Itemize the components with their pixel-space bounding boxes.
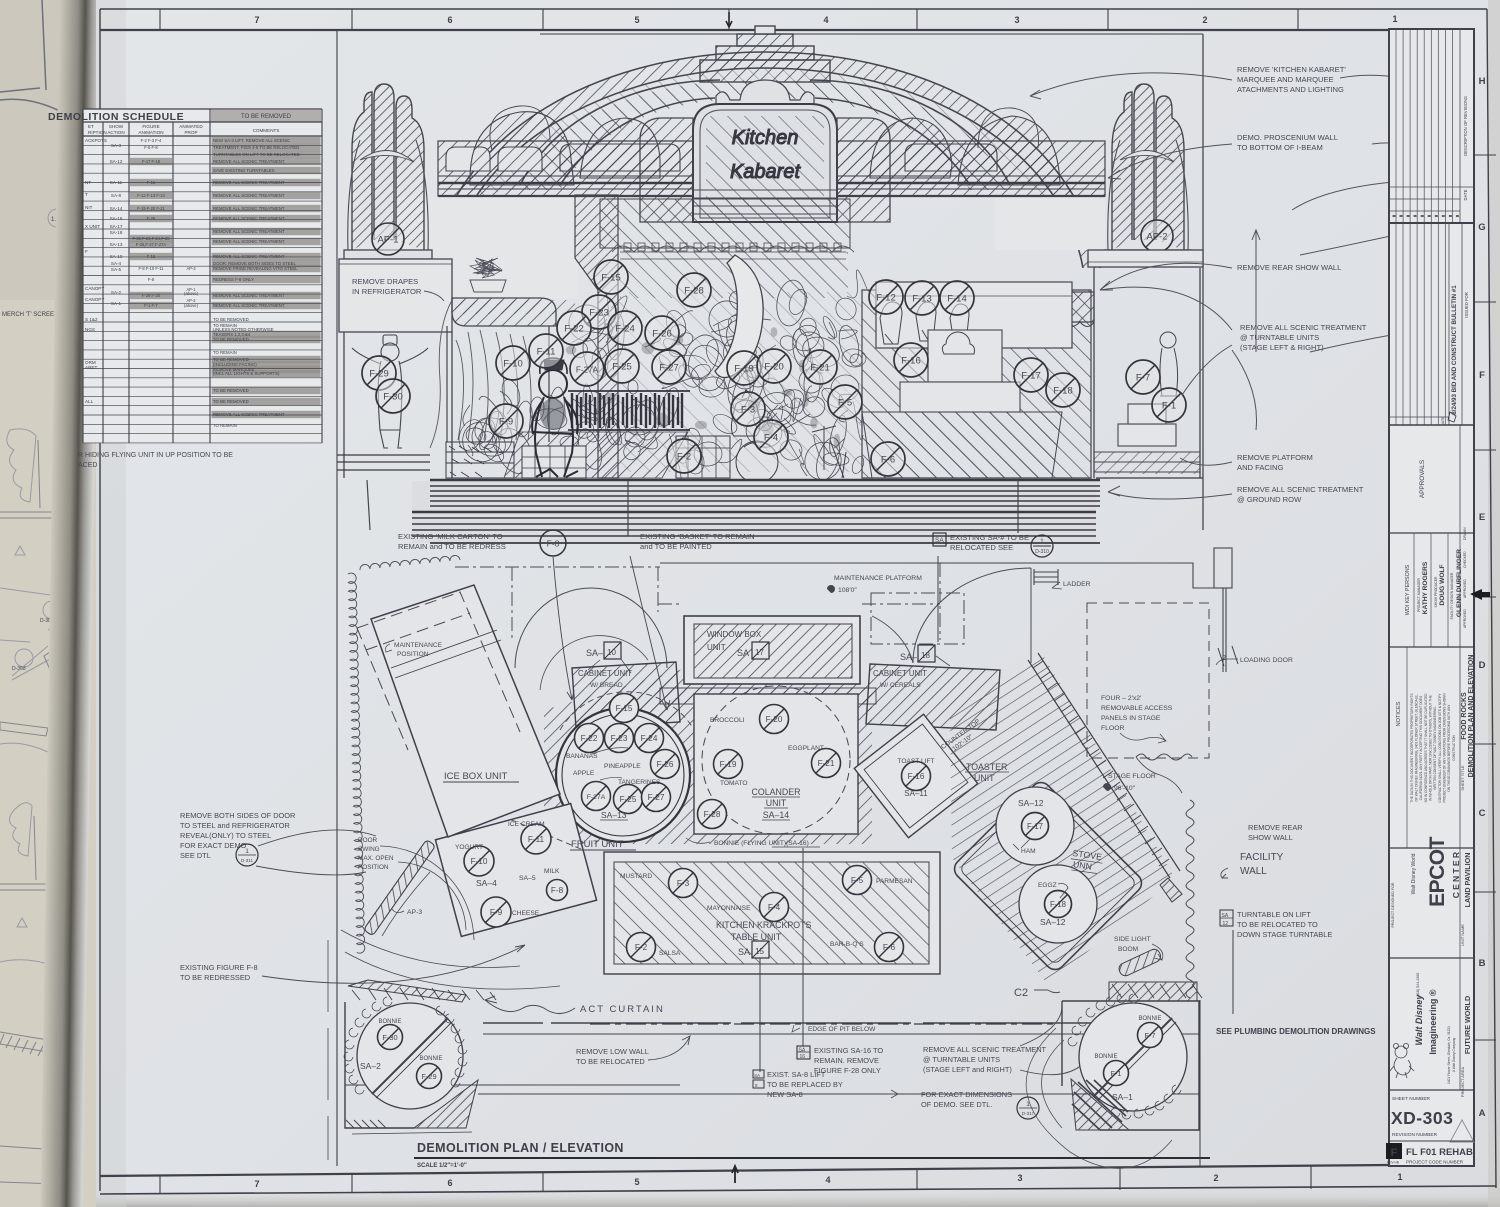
svg-text:REMOVE LOW WALL: REMOVE LOW WALL bbox=[576, 1047, 649, 1056]
svg-text:RELOCATED SEE: RELOCATED SEE bbox=[950, 543, 1013, 552]
svg-text:BOOM: BOOM bbox=[1118, 946, 1138, 953]
svg-text:SCALE 1/2″=1′-0″: SCALE 1/2″=1′-0″ bbox=[417, 1163, 467, 1169]
svg-text:SA-16: SA-16 bbox=[110, 216, 123, 221]
svg-text:SA-17: SA-17 bbox=[110, 224, 123, 229]
svg-text:PINEAPPLE: PINEAPPLE bbox=[604, 763, 641, 770]
svg-text:EXISTING ‘BASKET’ TO REMAIN: EXISTING ‘BASKET’ TO REMAIN bbox=[640, 532, 755, 541]
svg-text:12: 12 bbox=[1223, 921, 1229, 927]
svg-text:REMOVE 'KITCHEN KABARET': REMOVE 'KITCHEN KABARET' bbox=[1237, 65, 1346, 74]
svg-text:REMOVE ALL SCENIC TREATMENT: REMOVE ALL SCENIC TREATMENT bbox=[923, 1045, 1047, 1054]
svg-text:HAM: HAM bbox=[1021, 848, 1036, 855]
svg-text:ICE CREAM: ICE CREAM bbox=[508, 821, 545, 828]
svg-text:F-1 F-7: F-1 F-7 bbox=[144, 303, 158, 308]
svg-text:BONNIE: BONNIE bbox=[378, 1019, 401, 1025]
svg-text:F-24: F-24 bbox=[641, 734, 658, 743]
svg-text:SWING: SWING bbox=[358, 846, 380, 853]
svg-text:C: C bbox=[1479, 808, 1486, 819]
svg-text:DEMO. PROSCENIUM WALL: DEMO. PROSCENIUM WALL bbox=[1237, 133, 1338, 142]
svg-text:F-4: F-4 bbox=[768, 903, 781, 912]
svg-text:(above): (above) bbox=[184, 291, 199, 296]
svg-text:Imagineering ®: Imagineering ® bbox=[1428, 989, 1438, 1055]
svg-text:EDGE OF PIT BELOW: EDGE OF PIT BELOW bbox=[808, 1026, 876, 1033]
svg-text:DATE: DATE bbox=[1441, 416, 1445, 426]
svg-text:CONTRACTOR SHALL VERIFY ALL CO: CONTRACTOR SHALL VERIFY ALL CONDITIONS O… bbox=[1438, 693, 1442, 803]
svg-text:7: 7 bbox=[254, 15, 259, 25]
svg-text:BANANAS: BANANAS bbox=[566, 753, 598, 760]
svg-text:Kabaret: Kabaret bbox=[730, 161, 801, 183]
svg-text:PANELS IN STAGE: PANELS IN STAGE bbox=[1101, 715, 1161, 722]
svg-text:DEMOLITION PLAN AND ELEVATION: DEMOLITION PLAN AND ELEVATION bbox=[1468, 655, 1475, 778]
svg-text:DOWN STAGE TURNTABLE: DOWN STAGE TURNTABLE bbox=[1237, 930, 1332, 939]
svg-text:REMOVE ALL SCENIC TREATMENT: REMOVE ALL SCENIC TREATMENT bbox=[213, 254, 285, 259]
svg-text:DEMOLITION PLAN / ELEVATION: DEMOLITION PLAN / ELEVATION bbox=[417, 1141, 624, 1155]
svg-text:REMOVE ALL SCENIC TREATMENT: REMOVE ALL SCENIC TREATMENT bbox=[213, 216, 285, 221]
svg-text:NEW SA-8: NEW SA-8 bbox=[767, 1090, 803, 1099]
svg-text:TURNTABLE ON LIFT: TURNTABLE ON LIFT bbox=[1237, 910, 1311, 919]
svg-text:D-310: D-310 bbox=[1035, 549, 1049, 555]
svg-text:ACKPOTS: ACKPOTS bbox=[85, 138, 107, 143]
svg-text:SHOW: SHOW bbox=[109, 124, 124, 129]
svg-text:FOR EXACT DIMENSIONS: FOR EXACT DIMENSIONS bbox=[921, 1090, 1012, 1099]
svg-text:ET: ET bbox=[88, 124, 94, 129]
svg-text:PROJECT DESIGNED FOR: PROJECT DESIGNED FOR bbox=[1391, 882, 1395, 927]
svg-text:F-9: F-9 bbox=[490, 908, 503, 917]
svg-text:F-5 F-8: F-5 F-8 bbox=[144, 145, 158, 150]
svg-text:REMAIN and TO BE REDRESS: REMAIN and TO BE REDRESS bbox=[398, 542, 506, 551]
svg-text:F-5: F-5 bbox=[851, 876, 864, 885]
svg-text:D-311: D-311 bbox=[241, 858, 253, 863]
svg-text:TURNTABLES ON LIFT TO BE RELOC: TURNTABLES ON LIFT TO BE RELOCATED bbox=[213, 152, 300, 157]
svg-text:OF DEMO. SEE DTL.: OF DEMO. SEE DTL. bbox=[921, 1100, 992, 1109]
svg-text:F-11: F-11 bbox=[528, 835, 545, 844]
svg-text:TO BE RELOCATED: TO BE RELOCATED bbox=[576, 1057, 645, 1066]
svg-text:ISSUED FOR: ISSUED FOR bbox=[1464, 292, 1469, 318]
svg-text:UNIT: UNIT bbox=[707, 643, 726, 652]
svg-text:POSITION: POSITION bbox=[358, 864, 389, 871]
svg-text:WDI KEY PERSONS: WDI KEY PERSONS bbox=[1405, 564, 1411, 615]
svg-text:SA–13: SA–13 bbox=[601, 810, 627, 820]
svg-text:SA-5: SA-5 bbox=[111, 267, 122, 272]
svg-text:FOUR – 2′x2′: FOUR – 2′x2′ bbox=[1101, 695, 1142, 702]
svg-text:REMAIN. REMOVE: REMAIN. REMOVE bbox=[814, 1056, 879, 1065]
svg-text:SA-1: SA-1 bbox=[111, 301, 122, 306]
svg-text:BAR-B-Q S: BAR-B-Q S bbox=[830, 941, 864, 948]
svg-text:SEE DTL: SEE DTL bbox=[180, 851, 211, 860]
svg-text:DRAWN: DRAWN bbox=[1463, 527, 1467, 540]
svg-text:TO REMAIN: TO REMAIN bbox=[213, 423, 237, 428]
svg-text:MUSTARD: MUSTARD bbox=[620, 873, 652, 880]
svg-text:REMOVE ALL SCENIC TREATMENT: REMOVE ALL SCENIC TREATMENT bbox=[213, 239, 285, 244]
svg-text:F-16: F-16 bbox=[908, 772, 925, 781]
svg-text:AND FACING: AND FACING bbox=[1237, 463, 1284, 472]
svg-text:SEE PLUMBING DEMOLITION DRAWIN: SEE PLUMBING DEMOLITION DRAWINGS bbox=[1216, 1027, 1376, 1036]
svg-text:PROJECT AREA: PROJECT AREA bbox=[1460, 1066, 1465, 1097]
svg-text:SA-14: SA-14 bbox=[110, 206, 123, 211]
svg-text:7: 7 bbox=[254, 1179, 259, 1189]
svg-text:F-17: F-17 bbox=[1021, 371, 1041, 382]
svg-text:ATACHMENTS AND LIGHTING: ATACHMENTS AND LIGHTING bbox=[1237, 85, 1344, 94]
svg-text:SA: SA bbox=[738, 947, 750, 957]
svg-text:OF WALT DISNEY IMAGINEERING, 1: OF WALT DISNEY IMAGINEERING, 1401 FLOWER… bbox=[1415, 694, 1419, 801]
svg-text:F-27A: F-27A bbox=[587, 794, 606, 801]
svg-text:F-20: F-20 bbox=[764, 362, 784, 373]
svg-text:REMOVE ALL SCENIC TREATMENT: REMOVE ALL SCENIC TREATMENT bbox=[1237, 485, 1364, 494]
svg-text:F-5: F-5 bbox=[838, 398, 852, 409]
svg-text:W/ CEREALS: W/ CEREALS bbox=[880, 682, 921, 689]
svg-text:AP-1: AP-1 bbox=[377, 235, 398, 246]
svg-text:FUTURE WORLD: FUTURE WORLD bbox=[1463, 996, 1472, 1054]
svg-text:F-22,F-23,F-24,F-25: F-22,F-23,F-24,F-25 bbox=[132, 236, 170, 241]
svg-text:SA-2: SA-2 bbox=[111, 290, 122, 295]
svg-text:UNIT: UNIT bbox=[766, 798, 787, 808]
svg-text:AP-3: AP-3 bbox=[407, 909, 422, 916]
svg-text:NIT: NIT bbox=[85, 205, 93, 210]
svg-text:SALSA: SALSA bbox=[659, 950, 681, 957]
svg-text:Walt Disney World: Walt Disney World bbox=[1411, 853, 1417, 894]
svg-text:F-28: F-28 bbox=[684, 286, 704, 297]
svg-text:TO BE REMOVED: TO BE REMOVED bbox=[213, 388, 249, 393]
svg-text:ARET: ARET bbox=[85, 365, 97, 370]
svg-text:R HIDING FLYING UNIT IN UP POS: R HIDING FLYING UNIT IN UP POSITION TO B… bbox=[78, 452, 233, 459]
svg-text:CABINET UNIT: CABINET UNIT bbox=[873, 669, 927, 678]
svg-text:TO BE RELOCATED TO: TO BE RELOCATED TO bbox=[1237, 920, 1318, 929]
svg-text:F-16: F-16 bbox=[901, 356, 921, 367]
svg-text:F-24: F-24 bbox=[615, 324, 635, 335]
svg-text:F-22: F-22 bbox=[581, 734, 598, 743]
svg-text:DOUG WOLF: DOUG WOLF bbox=[1439, 564, 1446, 605]
svg-text:FLOOR: FLOOR bbox=[1101, 725, 1125, 732]
svg-text:TO BE REMOVED: TO BE REMOVED bbox=[213, 317, 249, 322]
svg-text:5: 5 bbox=[634, 15, 639, 25]
svg-text:SA: SA bbox=[799, 1048, 806, 1054]
svg-text:SO IN CONFIDENCE AND AGREES TH: SO IN CONFIDENCE AND AGREES THAT IT SHAL… bbox=[1424, 693, 1428, 803]
svg-text:SA-4: SA-4 bbox=[111, 261, 122, 266]
svg-text:17: 17 bbox=[755, 648, 764, 657]
svg-text:ANIMATED: ANIMATED bbox=[179, 124, 203, 129]
svg-text:WALL: WALL bbox=[1240, 866, 1267, 877]
svg-text:B: B bbox=[1479, 958, 1486, 969]
svg-text:F-19: F-19 bbox=[734, 364, 754, 375]
svg-text:NEW SA-3 LIFT. REMOVE ALL SCEN: NEW SA-3 LIFT. REMOVE ALL SCENIC bbox=[213, 138, 290, 143]
svg-text:LAND PAVILION: LAND PAVILION bbox=[1463, 853, 1472, 908]
svg-text:EXIST. SA-8 LIFT: EXIST. SA-8 LIFT bbox=[767, 1070, 826, 1079]
svg-text:SA–4: SA–4 bbox=[476, 878, 497, 888]
svg-text:F: F bbox=[1391, 1147, 1398, 1159]
svg-text:SA-10: SA-10 bbox=[110, 254, 123, 259]
svg-text:SA-11: SA-11 bbox=[110, 180, 123, 185]
svg-text:16: 16 bbox=[800, 1054, 806, 1060]
svg-text:BONNIE: BONNIE bbox=[1094, 1054, 1117, 1060]
svg-text:C2: C2 bbox=[1014, 987, 1028, 999]
svg-text:KITCHEN KRACKPOTS: KITCHEN KRACKPOTS bbox=[716, 920, 811, 930]
svg-text:F-1: F-1 bbox=[1162, 401, 1176, 412]
svg-text:F-16: F-16 bbox=[147, 180, 156, 185]
svg-text:F-25: F-25 bbox=[620, 795, 637, 804]
svg-text:FL F01 REHAB: FL F01 REHAB bbox=[1406, 1147, 1473, 1158]
svg-text:KATHY ROGERS: KATHY ROGERS bbox=[1422, 561, 1429, 614]
svg-text:108′0″: 108′0″ bbox=[838, 587, 857, 594]
svg-text:GLENN DURFLINGER: GLENN DURFLINGER bbox=[1456, 549, 1463, 617]
svg-text:TO BOTTOM OF I-BEAM: TO BOTTOM OF I-BEAM bbox=[1237, 143, 1323, 152]
svg-text:F-2 F-3 F-4: F-2 F-3 F-4 bbox=[141, 138, 162, 143]
svg-text:1: 1 bbox=[245, 848, 249, 855]
svg-text:FOOD ROCKS: FOOD ROCKS bbox=[1461, 692, 1468, 740]
svg-text:F-26: F-26 bbox=[652, 329, 672, 340]
svg-text:F-2: F-2 bbox=[677, 452, 691, 463]
svg-text:F-3: F-3 bbox=[741, 405, 755, 416]
svg-text:ALL: ALL bbox=[85, 399, 94, 404]
svg-text:SA–11: SA–11 bbox=[904, 789, 928, 798]
svg-text:MILK: MILK bbox=[544, 868, 560, 875]
svg-text:EXISTING ‘MILK CARTON’ TO: EXISTING ‘MILK CARTON’ TO bbox=[398, 532, 503, 541]
svg-text:F-29 F-30: F-29 F-30 bbox=[142, 293, 161, 298]
svg-text:SA-12: SA-12 bbox=[110, 159, 123, 164]
svg-text:4: 4 bbox=[823, 15, 828, 25]
svg-text:SA-8: SA-8 bbox=[111, 193, 122, 198]
svg-text:TO BE REMOVED: TO BE REMOVED bbox=[241, 114, 292, 120]
svg-text:BROCCOLI: BROCCOLI bbox=[710, 717, 745, 724]
svg-text:5: 5 bbox=[634, 1177, 639, 1187]
svg-text:H: H bbox=[1479, 76, 1486, 87]
svg-text:SIDE LIGHT: SIDE LIGHT bbox=[1114, 936, 1151, 943]
svg-text:X UNIT: X UNIT bbox=[85, 224, 100, 229]
svg-text:REVISION NUMBER: REVISION NUMBER bbox=[1392, 1132, 1438, 1138]
svg-text:F-9: F-9 bbox=[499, 417, 513, 428]
svg-text:SA–2: SA–2 bbox=[360, 1061, 381, 1071]
svg-text:APPROVED: APPROVED bbox=[1463, 609, 1467, 628]
svg-text:F-13: F-13 bbox=[912, 294, 932, 305]
svg-text:MAX. OPEN: MAX. OPEN bbox=[358, 855, 394, 862]
svg-text:Walt Disney: Walt Disney bbox=[1414, 994, 1424, 1046]
svg-text:F-30: F-30 bbox=[382, 1033, 397, 1042]
svg-text:F-7: F-7 bbox=[1136, 373, 1150, 384]
svg-text:DOOR: DOOR bbox=[358, 837, 378, 844]
svg-text:CALIFORNIA 91221. ANY PARTY A: CALIFORNIA 91221. ANY PARTY ACCEPTING TH… bbox=[1419, 696, 1423, 801]
svg-text:F-20: F-20 bbox=[766, 715, 783, 724]
svg-text:FACILITY DESIGN MANAGER: FACILITY DESIGN MANAGER bbox=[1450, 572, 1454, 619]
svg-text:REMOVE REAR: REMOVE REAR bbox=[1248, 823, 1303, 832]
svg-text:EXISTING SA-# TO BE: EXISTING SA-# TO BE bbox=[950, 533, 1029, 542]
svg-text:PROJECT CODE NUMBER: PROJECT CODE NUMBER bbox=[1406, 1160, 1464, 1165]
svg-text:2: 2 bbox=[1213, 1173, 1218, 1183]
svg-text:SHEET TITLE: SHEET TITLE bbox=[1460, 765, 1465, 791]
svg-text:D: D bbox=[1479, 660, 1486, 671]
svg-text:and TO BE PAINTED: and TO BE PAINTED bbox=[640, 542, 712, 551]
svg-text:F-23: F-23 bbox=[611, 734, 628, 743]
svg-text:TOMATO: TOMATO bbox=[720, 780, 747, 787]
svg-text:LOADING DOOR: LOADING DOOR bbox=[1240, 657, 1293, 664]
svg-text:CENTER: CENTER bbox=[1451, 850, 1461, 899]
svg-text:A Walt Disney Company: A Walt Disney Company bbox=[1452, 1037, 1456, 1072]
svg-text:@ TURNTABLE UNITS: @ TURNTABLE UNITS bbox=[923, 1055, 1000, 1064]
svg-text:REMOVE ALL SCENIC TREATMENT: REMOVE ALL SCENIC TREATMENT bbox=[213, 180, 285, 185]
svg-text:1: 1 bbox=[1397, 1172, 1402, 1182]
svg-text:18: 18 bbox=[921, 651, 930, 660]
svg-text:3: 3 bbox=[1014, 15, 1019, 25]
svg-text:SAVE EXISTING TURNTABLES: SAVE EXISTING TURNTABLES bbox=[213, 168, 275, 173]
svg-text:F-17: F-17 bbox=[1027, 822, 1043, 831]
svg-text:REMOVE ALL SCENIC TREATMENT: REMOVE ALL SCENIC TREATMENT bbox=[213, 412, 285, 417]
svg-text:RIPTION: RIPTION bbox=[88, 130, 107, 135]
svg-text:REMOVE ALL SCENIC TREATMENT: REMOVE ALL SCENIC TREATMENT bbox=[213, 293, 285, 298]
svg-text:ACT CURTAIN: ACT CURTAIN bbox=[580, 1004, 665, 1015]
svg-text:DATE: DATE bbox=[1463, 189, 1468, 200]
svg-text:F-10: F-10 bbox=[471, 857, 488, 866]
svg-text:1401 Flower Street, Glendale,: 1401 Flower Street, Glendale, Ca. 91221 bbox=[1447, 1026, 1451, 1084]
svg-text:F: F bbox=[85, 249, 88, 254]
svg-text:REMOVE ALL SCENIC TREATMENT: REMOVE ALL SCENIC TREATMENT bbox=[213, 229, 285, 234]
svg-text:ACTION: ACTION bbox=[107, 130, 124, 135]
svg-text:F-26: F-26 bbox=[657, 760, 674, 769]
svg-text:ON THESE DRAWINGS BEFORE PROCE: ON THESE DRAWINGS BEFORE PROCEEDING WITH… bbox=[1447, 704, 1451, 792]
svg-text:REMOVE ALL SCENIC TREATMENT: REMOVE ALL SCENIC TREATMENT bbox=[213, 303, 285, 308]
svg-text:F-18: F-18 bbox=[1050, 900, 1066, 909]
svg-text:SA: SA bbox=[754, 1073, 760, 1078]
svg-text:T: T bbox=[85, 192, 88, 197]
svg-text:15: 15 bbox=[755, 947, 764, 956]
svg-text:F-14: F-14 bbox=[947, 294, 967, 305]
svg-text:FRUIT UNIT: FRUIT UNIT bbox=[571, 839, 624, 850]
svg-text:6: 6 bbox=[447, 1178, 452, 1188]
svg-text:10: 10 bbox=[607, 648, 616, 657]
svg-text:E: E bbox=[1479, 512, 1485, 523]
svg-text:F-2: F-2 bbox=[635, 943, 648, 952]
svg-text:TO BE REPLACED BY: TO BE REPLACED BY bbox=[767, 1080, 843, 1089]
svg-text:F-19 F-20 F-21: F-19 F-20 F-21 bbox=[137, 206, 165, 211]
svg-text:F-21: F-21 bbox=[818, 759, 835, 768]
svg-text:(STAGE LEFT and RIGHT): (STAGE LEFT and RIGHT) bbox=[923, 1065, 1012, 1074]
svg-text:F-8 F-10 F-11: F-8 F-10 F-11 bbox=[139, 266, 165, 271]
svg-text:SA–14: SA–14 bbox=[763, 810, 790, 820]
svg-text:REMOVE FRIGE REVEALING VITO ST: REMOVE FRIGE REVEALING VITO STEEL bbox=[213, 266, 298, 271]
svg-text:EGGZ: EGGZ bbox=[1038, 882, 1057, 889]
svg-text:(above): (above) bbox=[184, 303, 199, 308]
svg-text:CANOPY: CANOPY bbox=[85, 286, 104, 291]
svg-text:F: F bbox=[1479, 370, 1485, 381]
svg-text:BONNIE: BONNIE bbox=[419, 1056, 442, 1062]
svg-text:F-29: F-29 bbox=[421, 1072, 436, 1081]
svg-text:REMOVE PLATFORM: REMOVE PLATFORM bbox=[1237, 453, 1313, 462]
svg-text:6: 6 bbox=[447, 15, 452, 25]
svg-text:SA-3: SA-3 bbox=[111, 143, 122, 148]
svg-text:REMOVE ALL SCENIC TREATMENT: REMOVE ALL SCENIC TREATMENT bbox=[213, 206, 285, 211]
svg-text:S 1&2: S 1&2 bbox=[85, 317, 98, 322]
svg-text:1: 1 bbox=[1392, 14, 1397, 24]
svg-text:ICE BOX UNIT: ICE BOX UNIT bbox=[444, 771, 508, 782]
svg-text:CONSTRUCTION: CONSTRUCTION bbox=[1452, 734, 1456, 760]
svg-text:(STAGE LEFT & RIGHT): (STAGE LEFT & RIGHT) bbox=[1240, 343, 1324, 352]
svg-text:F-15: F-15 bbox=[616, 704, 633, 713]
svg-text:MAINTENANCE PLATFORM: MAINTENANCE PLATFORM bbox=[834, 575, 922, 582]
svg-text:4: 4 bbox=[825, 1175, 830, 1185]
svg-text:APPLE: APPLE bbox=[573, 770, 595, 777]
svg-text:F-28: F-28 bbox=[147, 216, 156, 221]
svg-text:BONNIE: BONNIE bbox=[1138, 1016, 1161, 1022]
svg-text:SA-18: SA-18 bbox=[110, 230, 123, 235]
svg-text:MARQUEE AND MARQUEE: MARQUEE AND MARQUEE bbox=[1237, 75, 1334, 84]
svg-text:AP-3: AP-3 bbox=[186, 266, 196, 271]
svg-text:SA–12: SA–12 bbox=[1018, 798, 1044, 808]
svg-text:ACED: ACED bbox=[78, 462, 97, 469]
svg-text:DEMOLITION SCHEDULE: DEMOLITION SCHEDULE bbox=[48, 111, 184, 123]
svg-text:REMOVABLE ACCESS: REMOVABLE ACCESS bbox=[1101, 705, 1173, 712]
svg-text:EPCOT: EPCOT bbox=[1426, 836, 1449, 907]
svg-text:A: A bbox=[1479, 1108, 1486, 1119]
svg-text:TO REMAIN: TO REMAIN bbox=[213, 350, 237, 355]
svg-text:F-8: F-8 bbox=[547, 539, 560, 549]
svg-text:(818) 544-4300: (818) 544-4300 bbox=[1416, 973, 1420, 998]
svg-text:(INCL ALL LIGHTS & SUPPORTS): (INCL ALL LIGHTS & SUPPORTS) bbox=[213, 371, 280, 376]
svg-text:TREATMENT. FIGS 4-5 TO BE RELO: TREATMENT. FIGS 4-5 TO BE RELOCATED bbox=[213, 145, 299, 150]
svg-text:F-3: F-3 bbox=[677, 879, 690, 888]
svg-text:NT: NT bbox=[85, 180, 91, 185]
svg-text:D-308: D-308 bbox=[12, 666, 26, 672]
svg-text:APPROVED: APPROVED bbox=[1463, 579, 1467, 598]
svg-text:SA: SA bbox=[935, 537, 944, 544]
svg-text:AP-2: AP-2 bbox=[1146, 232, 1167, 243]
svg-text:SHEET NUMBER: SHEET NUMBER bbox=[1392, 1096, 1431, 1102]
svg-text:F-30: F-30 bbox=[383, 392, 403, 403]
svg-text:F-15: F-15 bbox=[601, 273, 621, 284]
svg-text:F-10: F-10 bbox=[503, 359, 523, 370]
svg-text:F-19: F-19 bbox=[720, 760, 737, 769]
svg-text:XD-303: XD-303 bbox=[1391, 1108, 1453, 1128]
svg-text:F-1: F-1 bbox=[1110, 1069, 1121, 1078]
svg-text:FACILITY: FACILITY bbox=[1240, 852, 1284, 863]
svg-text:F-18: F-18 bbox=[1053, 386, 1073, 397]
svg-text:F-12: F-12 bbox=[876, 293, 896, 304]
svg-text:REMOVE REAR SHOW WALL: REMOVE REAR SHOW WALL bbox=[1237, 263, 1341, 272]
svg-text:SHOW WALL: SHOW WALL bbox=[1248, 833, 1293, 842]
svg-text:REMOVE ALL SCENIC TREATMENT: REMOVE ALL SCENIC TREATMENT bbox=[213, 193, 285, 198]
svg-text:REV-HB: REV-HB bbox=[1387, 1161, 1399, 1165]
svg-text:REMOVE ALL SCENIC TREATMENT: REMOVE ALL SCENIC TREATMENT bbox=[1240, 323, 1367, 332]
svg-text:F-6: F-6 bbox=[881, 455, 895, 466]
svg-text:F-27: F-27 bbox=[659, 363, 679, 374]
svg-text:TO STEEL and REFRIGERATOR: TO STEEL and REFRIGERATOR bbox=[180, 821, 290, 830]
svg-text:F-29: F-29 bbox=[369, 369, 389, 380]
svg-text:F-17 F-18: F-17 F-18 bbox=[142, 159, 161, 164]
svg-text:CHEESE: CHEESE bbox=[512, 910, 540, 917]
svg-text:@ GROUND ROW: @ GROUND ROW bbox=[1237, 495, 1302, 504]
svg-text:PROJECT ENGINEER OF ANY VARIAT: PROJECT ENGINEER OF ANY VARIATIONS FROM … bbox=[1443, 693, 1447, 803]
svg-text:APPROVALS: APPROVALS bbox=[1419, 460, 1426, 498]
svg-text:IN REFRIGERATOR: IN REFRIGERATOR bbox=[352, 287, 422, 296]
svg-text:REMOVE ALL SCENIC TREATMENT: REMOVE ALL SCENIC TREATMENT bbox=[213, 159, 285, 164]
svg-text:SA–5: SA–5 bbox=[519, 875, 536, 882]
svg-text:8/24/93 BID AND CONSTRUCT: 8/24/93 BID AND CONSTRUCT BULLETIN #1 bbox=[1451, 285, 1458, 415]
svg-text:F-11: F-11 bbox=[537, 347, 556, 358]
svg-text:F-27: F-27 bbox=[648, 793, 665, 802]
svg-text:SA: SA bbox=[737, 648, 749, 658]
svg-text:REVEAL(ONLY) TO STEEL: REVEAL(ONLY) TO STEEL bbox=[180, 831, 271, 840]
svg-text:F-12 F-13 F-14: F-12 F-13 F-14 bbox=[137, 193, 165, 198]
svg-text:UNIT NAME: UNIT NAME bbox=[1460, 924, 1465, 946]
svg-text:MAINTENANCE: MAINTENANCE bbox=[394, 642, 443, 649]
svg-text:96′-10″: 96′-10″ bbox=[1114, 785, 1136, 792]
svg-text:PROJECT MANAGER: PROJECT MANAGER bbox=[1417, 578, 1421, 612]
svg-text:REDRESS F-8 ONLY: REDRESS F-8 ONLY bbox=[213, 277, 254, 282]
svg-text:COLANDER: COLANDER bbox=[752, 787, 801, 797]
svg-text:WRITTEN CONSENT OF WALT DISNEY: WRITTEN CONSENT OF WALT DISNEY IMAGINEER… bbox=[1433, 706, 1437, 790]
svg-text:ANIMATION: ANIMATION bbox=[138, 130, 163, 135]
svg-text:TOAST LIFT: TOAST LIFT bbox=[897, 758, 934, 765]
svg-text:CANOPY: CANOPY bbox=[85, 297, 104, 302]
svg-text:PROP: PROP bbox=[184, 130, 197, 135]
svg-text:NGS: NGS bbox=[85, 327, 95, 332]
svg-text:F-8: F-8 bbox=[148, 277, 155, 282]
svg-text:POSITION: POSITION bbox=[397, 651, 429, 658]
